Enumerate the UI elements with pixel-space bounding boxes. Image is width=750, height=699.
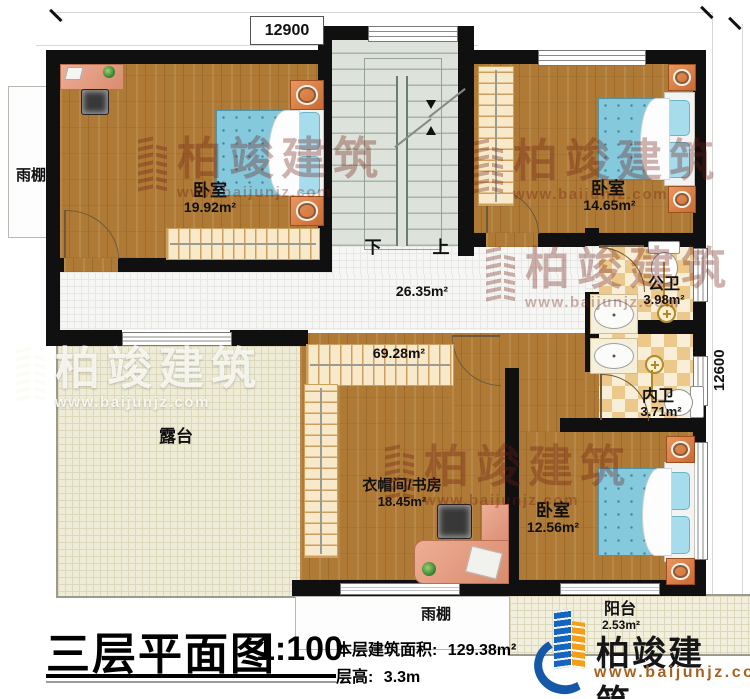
logo-tower-blue-icon — [554, 609, 571, 669]
brand-logo-icon — [536, 610, 594, 690]
stairs-up-label: 上 — [430, 239, 452, 258]
plant-icon — [422, 562, 436, 576]
cloakroom-name: 衣帽间/书房 — [347, 478, 457, 495]
stairs-down-label: 下 — [362, 239, 384, 258]
dimension-right: 12600 — [712, 338, 729, 402]
nightstand — [668, 186, 696, 213]
nightstand — [290, 80, 324, 110]
canopy-bottom-name: 雨棚 — [410, 607, 462, 624]
dimension-tick — [49, 9, 62, 22]
bedroom1-area: 19.92m² — [165, 200, 255, 215]
wall — [230, 330, 308, 346]
floor-height-value: 3.3m — [384, 669, 420, 686]
private-bath-area: 3.71m² — [630, 405, 692, 419]
stair-arrow-down-icon — [426, 100, 436, 109]
watermark-building-icon — [14, 346, 48, 402]
plant-icon — [103, 66, 115, 78]
extension-line — [55, 12, 712, 13]
extension-line — [742, 24, 743, 600]
nightstand — [668, 64, 696, 91]
window — [368, 26, 458, 42]
window — [693, 248, 708, 302]
corridor-area: 26.35m² — [390, 284, 454, 299]
floor-area-info: 本层建筑面积: 129.38m² — [336, 636, 516, 660]
floor-area-label: 本层建筑面积: — [336, 642, 437, 659]
plan-scale: 1:100 — [256, 630, 343, 669]
bedroom3-name: 卧室 — [522, 502, 584, 521]
door-gap — [64, 258, 118, 272]
window — [538, 50, 646, 66]
pillow — [298, 156, 320, 194]
plan-title: 三层平面图 — [46, 618, 276, 682]
brand-logo-text: 柏竣建筑、 — [596, 626, 750, 699]
window — [560, 583, 660, 595]
bed — [598, 92, 693, 184]
stair-rail — [396, 76, 408, 246]
closet — [166, 228, 320, 260]
shower-icon — [645, 355, 664, 374]
stair-arrow-up-icon — [426, 126, 436, 135]
blanket — [268, 110, 300, 196]
window — [693, 442, 708, 560]
nightstand — [666, 558, 695, 585]
closet — [304, 384, 338, 558]
brand-logo: 柏竣建筑、 www.baijunjz.com — [536, 608, 750, 696]
bedroom3-area: 12.56m² — [514, 520, 592, 535]
bedroom1-name: 卧室 — [170, 182, 250, 201]
wall — [46, 330, 122, 346]
lamp-icon — [64, 67, 83, 80]
dimension-tick — [728, 17, 741, 30]
wall — [46, 50, 60, 346]
blanket — [640, 98, 670, 180]
computer-icon — [81, 89, 109, 115]
canopy-left-name: 雨棚 — [8, 168, 54, 185]
sink-icon — [594, 343, 634, 369]
door-gap — [585, 246, 599, 292]
nightstand — [666, 436, 695, 463]
floor-height-label: 层高: — [336, 669, 373, 686]
wardrobe-area: 69.28m² — [366, 346, 432, 361]
dimension-top: 12900 — [250, 16, 324, 45]
brand-logo-url: www.baijunjz.com — [594, 664, 750, 682]
window — [340, 583, 460, 595]
floor-height-info: 层高: 3.3m — [336, 663, 420, 687]
logo-tower-orange-icon — [572, 621, 585, 669]
public-bath-area: 3.98m² — [633, 293, 695, 307]
terrace-name: 露台 — [148, 428, 204, 447]
blanket — [642, 468, 672, 556]
title-underline — [46, 674, 336, 678]
dimension-top-value: 12900 — [265, 22, 310, 40]
floor-area-value: 129.38m² — [448, 642, 517, 659]
extension-line — [712, 12, 713, 600]
office-chair — [437, 504, 472, 539]
bedroom2-name: 卧室 — [568, 180, 648, 199]
corridor-floor — [60, 272, 587, 330]
closet — [478, 66, 514, 206]
door-gap — [585, 372, 599, 418]
door-gap — [486, 233, 538, 247]
wall — [46, 50, 332, 64]
public-bath-name: 公卫 — [634, 276, 694, 294]
bed — [598, 462, 693, 560]
floor-plan: 卧室 19.92m² 卧室 14.65m² 公卫 3.98m² 内卫 3.71m… — [0, 0, 750, 699]
private-bath-name: 内卫 — [628, 388, 688, 406]
bedroom2-area: 14.65m² — [562, 198, 657, 213]
window — [122, 332, 232, 346]
pillow — [298, 112, 320, 150]
sink-icon — [594, 300, 634, 329]
terrace-floor — [56, 344, 302, 598]
cloakroom-area: 18.45m² — [372, 495, 432, 509]
title-underline-thin — [46, 681, 336, 683]
nightstand — [290, 196, 324, 226]
